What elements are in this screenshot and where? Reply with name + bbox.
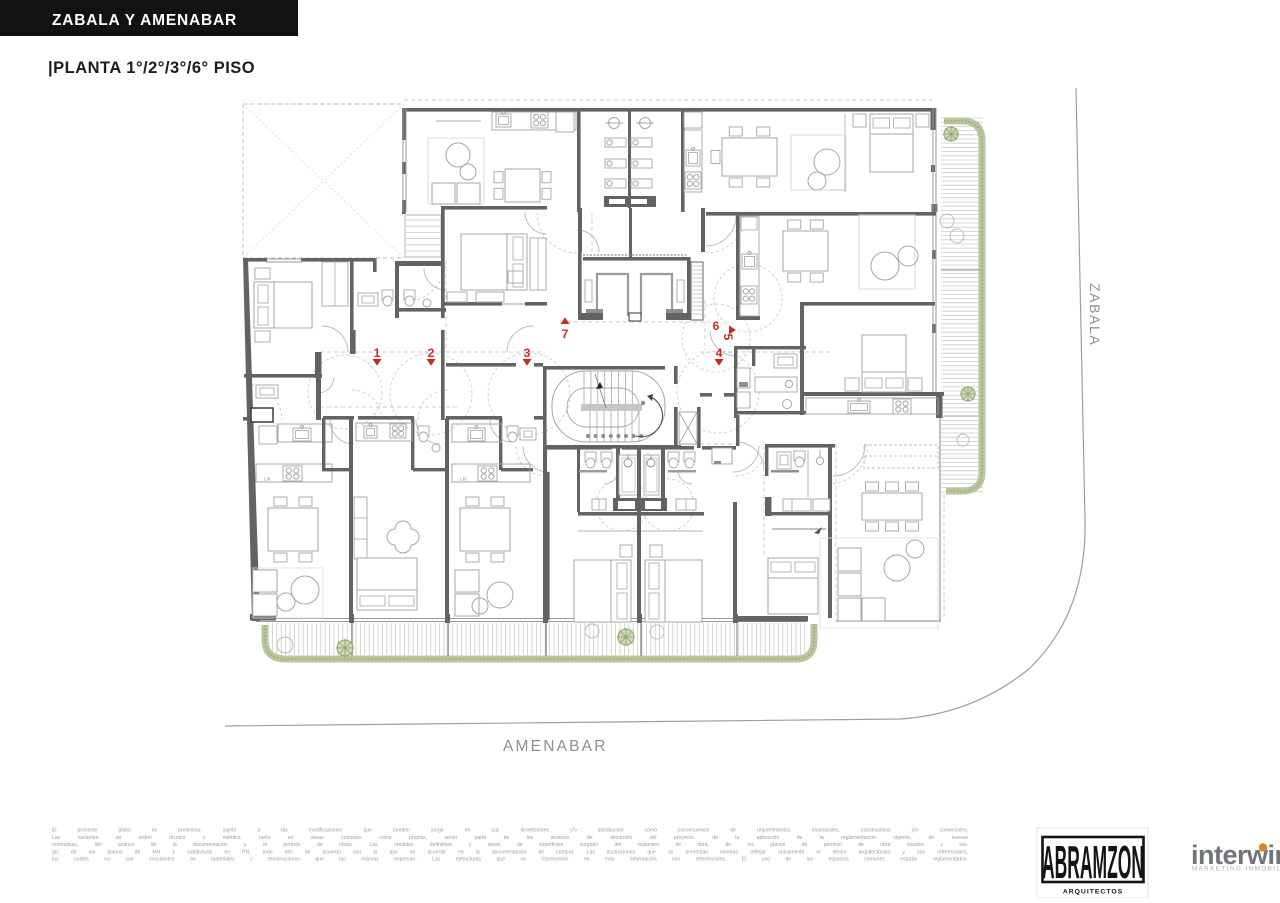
svg-text:El presente plano es prelimina: El presente plano es preliminar, sujeto …	[52, 828, 968, 834]
svg-text:5: 5	[721, 334, 735, 341]
svg-text:LR: LR	[460, 477, 467, 483]
svg-text:|PLANTA 1°/2°/3°/6° PISO: |PLANTA 1°/2°/3°/6° PISO	[48, 59, 255, 77]
svg-text:go, de los planos de MH y subd: go, de los planos de MH y subdivisión en…	[52, 849, 968, 855]
svg-text:1: 1	[374, 346, 381, 360]
svg-text:las cuales no son vinculantes: las cuales no son vinculantes en materia…	[52, 857, 968, 863]
svg-text:MARKETING INMOBILIARIO: MARKETING INMOBILIARIO	[1192, 866, 1280, 873]
svg-text:LR: LR	[264, 477, 271, 483]
svg-text:ARQUITECTOS: ARQUITECTOS	[1063, 889, 1123, 896]
svg-text:7: 7	[562, 327, 569, 341]
svg-text:3: 3	[524, 346, 531, 360]
svg-text:ZABALA Y AMENABAR: ZABALA Y AMENABAR	[52, 12, 237, 29]
svg-text:2: 2	[428, 346, 435, 360]
svg-text:Las variantes de orden técnico: Las variantes de orden técnico o estétic…	[52, 835, 968, 841]
svg-text:4: 4	[716, 346, 723, 360]
svg-text:AMENABAR: AMENABAR	[503, 738, 608, 755]
svg-text:6: 6	[713, 319, 720, 333]
svg-text:ZABALA: ZABALA	[1087, 283, 1103, 346]
svg-text:ABRAMZON: ABRAMZON	[1042, 838, 1144, 888]
svg-text:normativas, del avance de la d: normativas, del avance de la documentaci…	[52, 842, 968, 848]
